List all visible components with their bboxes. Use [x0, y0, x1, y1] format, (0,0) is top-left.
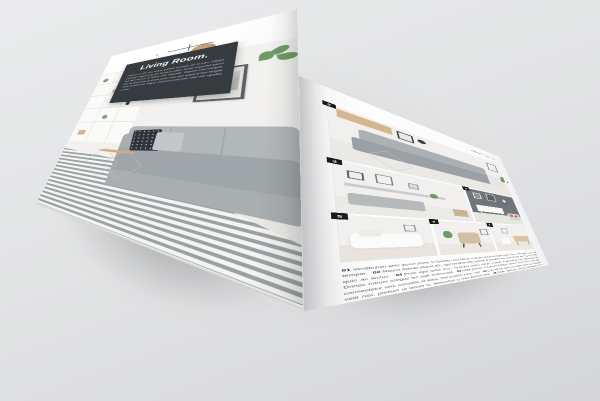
framed-art-shape	[408, 183, 420, 190]
chair-shape	[500, 238, 512, 245]
plant-shape	[442, 231, 453, 238]
registration-dot	[156, 54, 158, 55]
page-edge-marker-icon	[507, 181, 509, 183]
wall-clock-shape	[417, 139, 426, 145]
framed-art-shape	[375, 174, 394, 186]
plant-shape	[103, 78, 109, 82]
framed-art-shape	[486, 162, 498, 172]
pillow-shape	[152, 132, 185, 152]
pillow-shape	[358, 230, 382, 237]
floor-shape	[438, 243, 496, 255]
lounge-chair-shape	[457, 232, 482, 243]
plant-shape	[101, 115, 108, 119]
mockup-scene: Living Room. Vivamus ut enim nec massa p…	[0, 0, 600, 401]
orange-pillow-shape	[514, 215, 518, 217]
box-shape	[77, 130, 86, 135]
plant-shape	[429, 193, 438, 199]
wood-crate-shape	[453, 209, 469, 217]
framed-art-shape	[479, 229, 489, 235]
framed-art-shape	[501, 228, 509, 233]
photo-number-badge: 7	[486, 223, 493, 227]
photo-number-badge: 5	[331, 212, 348, 219]
catalog-photo-5: 5	[337, 215, 438, 262]
photo-number-badge: 6	[429, 219, 439, 224]
framed-art-shape	[347, 170, 365, 181]
framed-art-shape	[403, 225, 416, 232]
catalog-photo-7: 7	[488, 224, 534, 251]
